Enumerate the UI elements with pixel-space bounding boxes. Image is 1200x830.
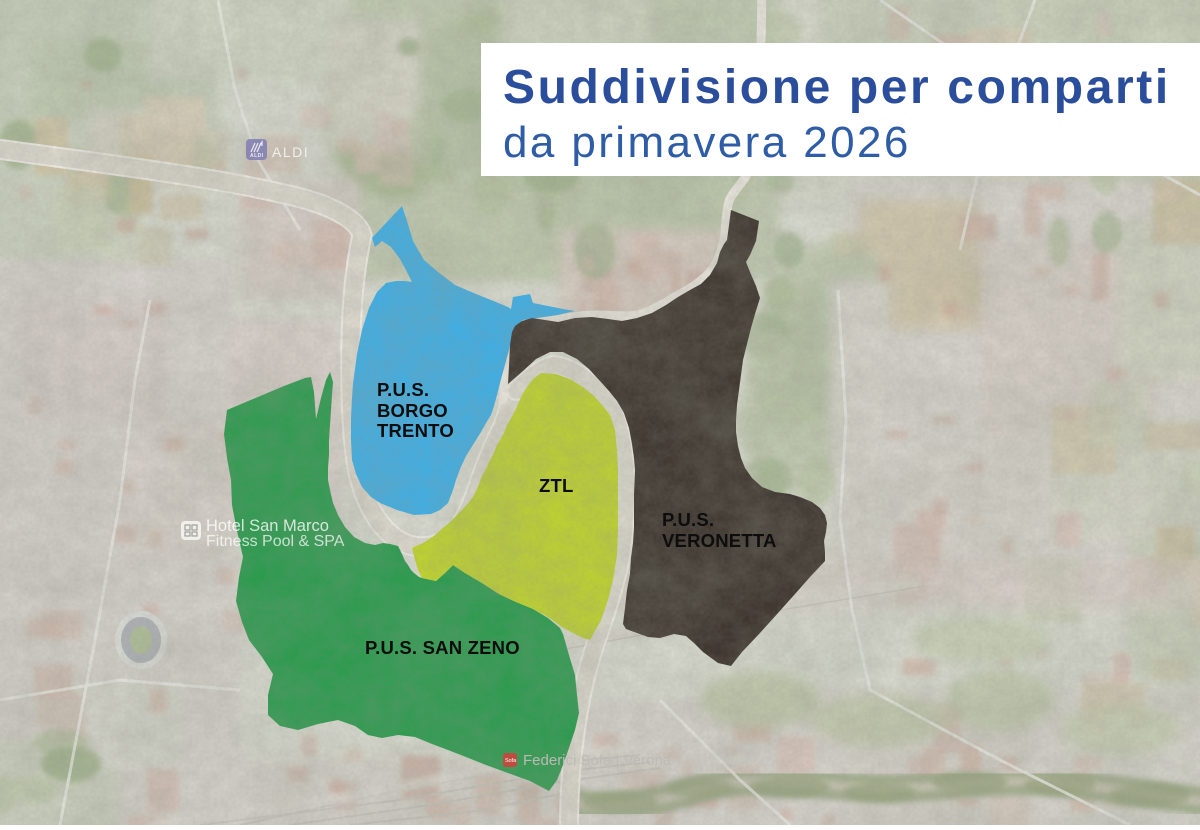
- svg-text:VERONETTA: VERONETTA: [662, 530, 777, 551]
- svg-text:ALDI: ALDI: [250, 153, 264, 159]
- svg-text:Sofa: Sofa: [505, 758, 517, 764]
- svg-text:ALDI: ALDI: [272, 144, 309, 160]
- svg-text:da primavera 2026: da primavera 2026: [503, 118, 911, 167]
- svg-text:P.U.S.: P.U.S.: [662, 509, 714, 530]
- svg-text:P.U.S. SAN ZENO: P.U.S. SAN ZENO: [365, 637, 520, 658]
- svg-text:Suddivisione per comparti: Suddivisione per comparti: [503, 61, 1171, 114]
- svg-text:TRENTO: TRENTO: [377, 420, 454, 441]
- svg-text:Federici Sofa | Verona: Federici Sofa | Verona: [523, 752, 672, 769]
- svg-text:P.U.S.: P.U.S.: [377, 379, 429, 400]
- svg-text:Fitness Pool & SPA: Fitness Pool & SPA: [206, 533, 345, 550]
- svg-text:ZTL: ZTL: [539, 475, 574, 496]
- svg-text:BORGO: BORGO: [377, 400, 448, 421]
